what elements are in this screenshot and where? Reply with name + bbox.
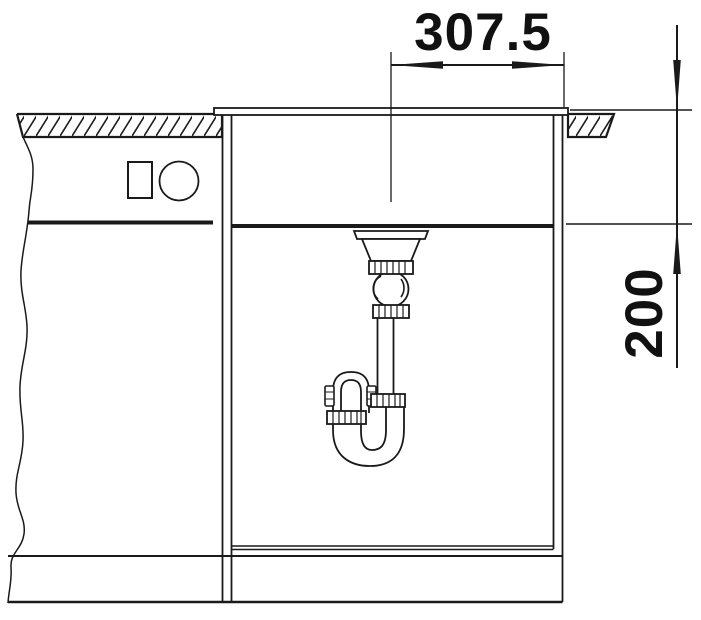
dimension-vertical: 200 xyxy=(566,25,692,368)
trap-side-nut-left xyxy=(325,386,334,406)
dimension-horizontal: 307.5 xyxy=(391,3,564,202)
drain-assembly xyxy=(325,231,428,466)
arrowhead-up xyxy=(673,224,681,274)
panel-rect-detail xyxy=(128,162,152,198)
cabinet xyxy=(8,115,563,602)
dimension-horizontal-label: 307.5 xyxy=(414,3,552,62)
break-line xyxy=(8,114,33,603)
panel-circle-detail xyxy=(160,162,199,201)
technical-drawing-canvas: 307.5 200 xyxy=(0,0,701,620)
drain-flange xyxy=(354,231,428,239)
arrowhead-right xyxy=(512,61,564,69)
dimension-vertical-label: 200 xyxy=(615,267,674,358)
arrowhead-left xyxy=(391,61,443,69)
arrowhead-down xyxy=(673,60,681,110)
strainer-body xyxy=(362,239,420,261)
countertop-left-hatch xyxy=(17,114,222,137)
countertop-left-section xyxy=(17,114,222,137)
countertop-right-section xyxy=(568,114,614,137)
sink-section-drawing: 307.5 200 xyxy=(0,0,701,620)
